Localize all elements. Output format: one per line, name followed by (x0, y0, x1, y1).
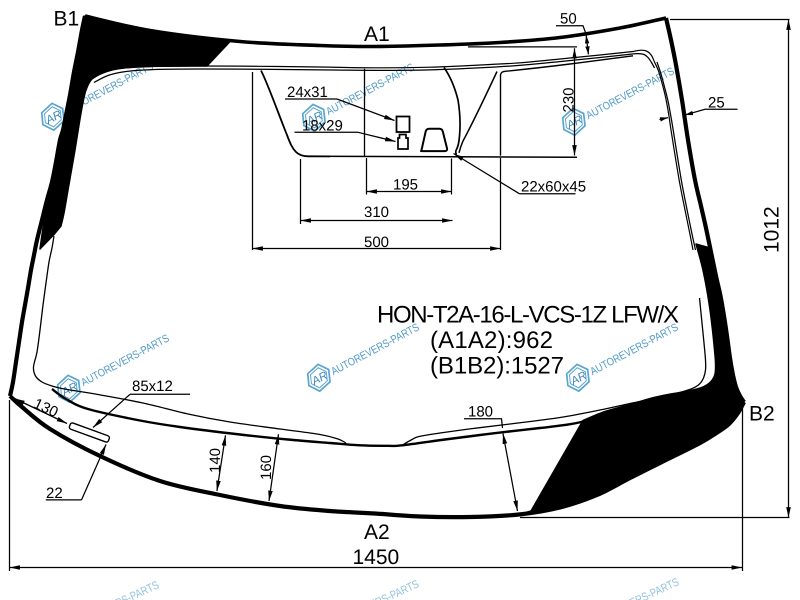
svg-text:B2: B2 (749, 403, 775, 426)
svg-text:AUTOREVERS-PARTS: AUTOREVERS-PARTS (327, 578, 421, 600)
svg-text:AUTOREVERS-PARTS: AUTOREVERS-PARTS (67, 579, 161, 600)
svg-text:180: 180 (468, 404, 493, 421)
svg-text:AUTOREVERS-PARTS: AUTOREVERS-PARTS (587, 576, 681, 600)
svg-text:A2: A2 (364, 521, 390, 544)
svg-text:500: 500 (364, 234, 389, 251)
svg-text:160: 160 (258, 455, 275, 480)
svg-text:195: 195 (393, 176, 418, 193)
svg-text:HON-T2A-16-L-VCS-1Z LFW/X: HON-T2A-16-L-VCS-1Z LFW/X (377, 302, 679, 329)
svg-text:1012: 1012 (761, 206, 784, 253)
svg-text:230: 230 (561, 87, 578, 112)
svg-text:50: 50 (560, 11, 577, 28)
svg-text:AUTOREVERS-PARTS: AUTOREVERS-PARTS (584, 65, 676, 122)
svg-text:1450: 1450 (353, 546, 400, 569)
svg-text:A1: A1 (364, 23, 390, 46)
svg-text:140: 140 (207, 448, 224, 473)
svg-text:310: 310 (364, 204, 389, 221)
svg-text:AUTOREVERS-PARTS: AUTOREVERS-PARTS (588, 321, 680, 378)
svg-text:22x60x45: 22x60x45 (521, 179, 586, 196)
svg-text:AUTOREVERS-PARTS: AUTOREVERS-PARTS (329, 321, 421, 378)
svg-text:B1: B1 (54, 8, 80, 31)
svg-text:(B1B2):1527: (B1B2):1527 (430, 353, 564, 380)
svg-text:85x12: 85x12 (132, 378, 173, 395)
svg-text:(A1A2):962: (A1A2):962 (430, 327, 553, 354)
